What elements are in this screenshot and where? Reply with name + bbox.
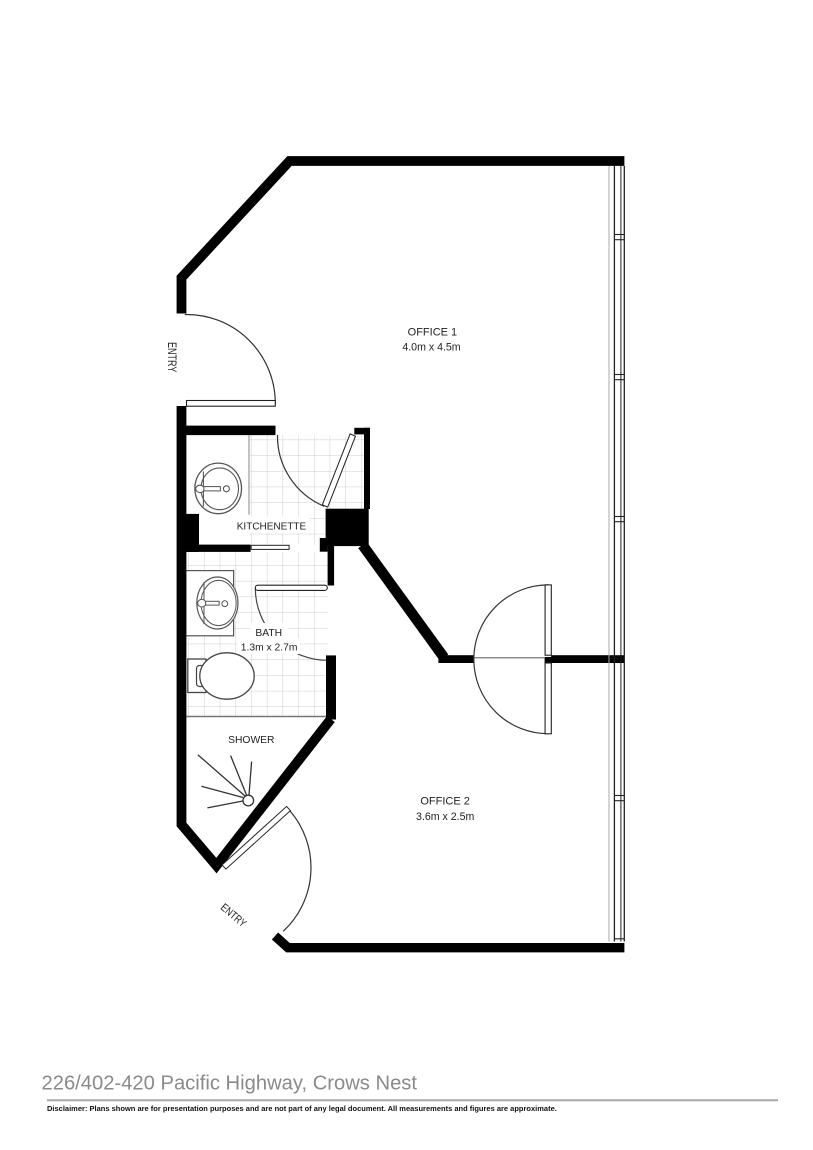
svg-text:ENTRY: ENTRY [218, 902, 249, 931]
svg-text:BATH: BATH [255, 628, 282, 639]
svg-text:226/402-420 Pacific Highway, C: 226/402-420 Pacific Highway, Crows Nest [42, 1073, 418, 1095]
svg-text:OFFICE 2: OFFICE 2 [420, 796, 470, 808]
svg-text:4.0m x 4.5m: 4.0m x 4.5m [402, 341, 460, 353]
svg-text:OFFICE 1: OFFICE 1 [408, 326, 458, 338]
svg-text:Disclaimer: Plans shown are fo: Disclaimer: Plans shown are for presenta… [47, 1104, 557, 1113]
svg-text:1.3m x 2.7m: 1.3m x 2.7m [241, 643, 298, 654]
svg-text:KITCHENETTE: KITCHENETTE [237, 522, 307, 533]
svg-text:3.6m x 2.5m: 3.6m x 2.5m [416, 811, 474, 823]
svg-text:SHOWER: SHOWER [228, 735, 274, 746]
svg-text:ENTRY: ENTRY [165, 342, 179, 372]
